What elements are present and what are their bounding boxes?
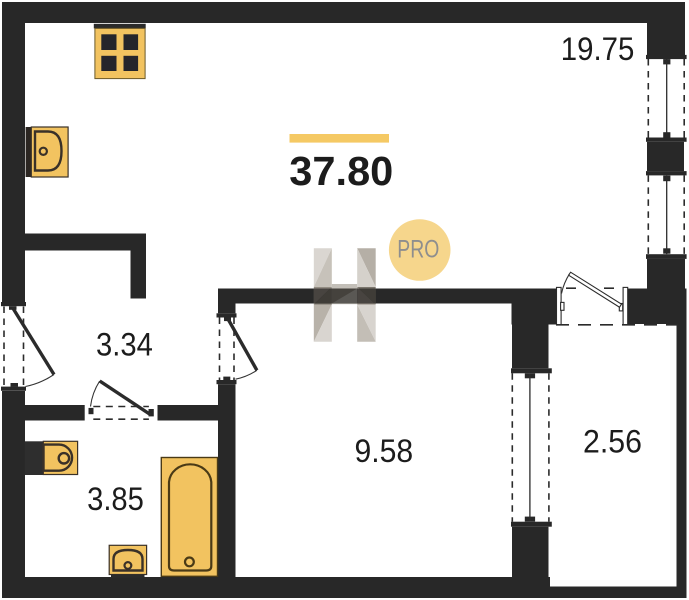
svg-text:2.56: 2.56 — [583, 424, 642, 460]
svg-text:9.58: 9.58 — [355, 433, 414, 469]
svg-text:37.80: 37.80 — [289, 148, 393, 194]
svg-text:19.75: 19.75 — [561, 31, 635, 67]
svg-text:3.85: 3.85 — [87, 481, 144, 517]
svg-text:3.34: 3.34 — [96, 326, 153, 362]
svg-text:PRO: PRO — [397, 235, 439, 263]
